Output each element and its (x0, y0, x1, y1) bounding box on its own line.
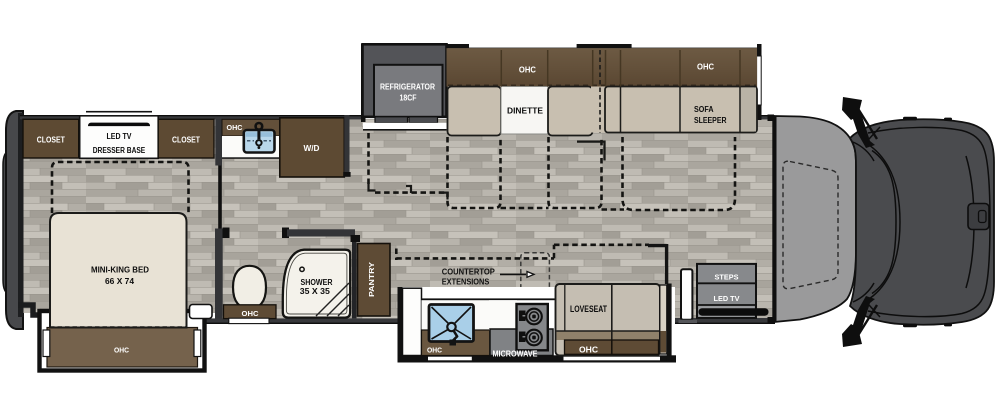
svg-text:18CF: 18CF (400, 94, 417, 103)
svg-text:STEPS: STEPS (715, 272, 739, 281)
svg-text:LED TV: LED TV (714, 294, 740, 303)
svg-text:MICROWAVE: MICROWAVE (493, 349, 538, 359)
svg-text:OHC: OHC (242, 309, 260, 318)
svg-text:COUNTERTOP: COUNTERTOP (442, 267, 495, 277)
svg-text:OHC: OHC (427, 345, 443, 354)
svg-text:CLOSET: CLOSET (172, 136, 200, 145)
svg-text:35 X 35: 35 X 35 (300, 287, 331, 296)
svg-text:OHC: OHC (114, 346, 130, 355)
svg-text:MINI-KING BED: MINI-KING BED (91, 266, 149, 275)
svg-text:W/D: W/D (304, 144, 320, 153)
svg-text:REFRIGERATOR: REFRIGERATOR (380, 82, 435, 91)
svg-text:DINETTE: DINETTE (507, 106, 543, 116)
svg-text:66 X 74: 66 X 74 (105, 277, 135, 286)
svg-text:OHC: OHC (227, 123, 244, 132)
svg-text:OHC: OHC (697, 63, 714, 72)
svg-text:SOFA: SOFA (694, 105, 714, 114)
svg-text:SLEEPER: SLEEPER (694, 116, 727, 125)
svg-text:CLOSET: CLOSET (37, 136, 65, 145)
svg-text:LOVESEAT: LOVESEAT (570, 304, 607, 314)
svg-text:EXTENSIONS: EXTENSIONS (442, 276, 490, 286)
svg-text:DRESSER BASE: DRESSER BASE (93, 146, 146, 155)
svg-text:OHC: OHC (579, 345, 598, 354)
svg-text:PANTRY: PANTRY (367, 262, 376, 297)
svg-text:LED TV: LED TV (107, 132, 133, 141)
svg-text:OHC: OHC (519, 66, 536, 75)
